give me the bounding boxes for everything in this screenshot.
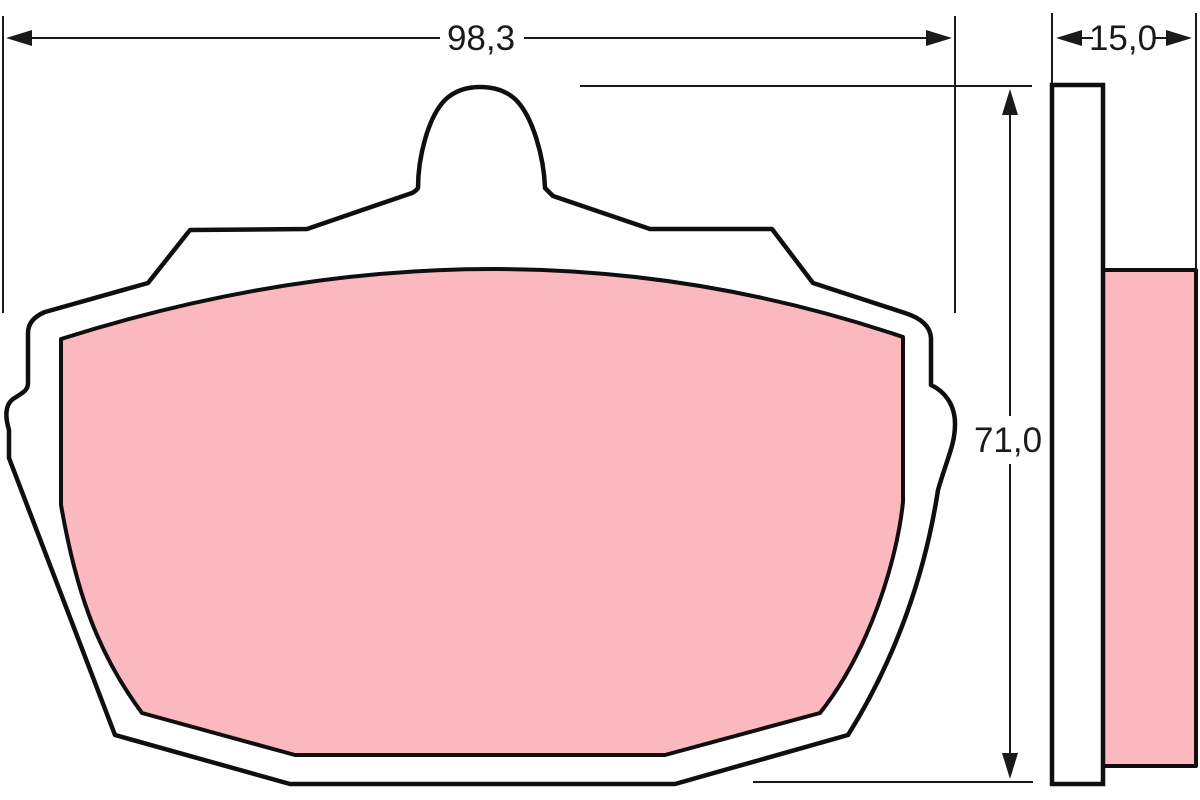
friction-material-side (1103, 270, 1196, 766)
width-dimension-label: 98,3 (447, 19, 515, 58)
thickness-dimension-label: 15,0 (1089, 19, 1157, 58)
side-view (1052, 85, 1196, 784)
height-dimension-label: 71,0 (974, 421, 1042, 460)
arrow-right-icon (1166, 30, 1192, 46)
arrow-left-icon (1056, 30, 1082, 46)
drawing-svg: 98,3 15,0 71,0 (0, 0, 1200, 800)
arrow-left-icon (6, 30, 32, 46)
arrow-up-icon (1002, 89, 1018, 115)
friction-material-front (61, 269, 903, 755)
brake-pad-technical-drawing: 98,3 15,0 71,0 (0, 0, 1200, 800)
arrow-down-icon (1002, 753, 1018, 779)
backplate-side (1052, 85, 1103, 784)
arrow-right-icon (926, 30, 952, 46)
front-view (6, 87, 955, 784)
